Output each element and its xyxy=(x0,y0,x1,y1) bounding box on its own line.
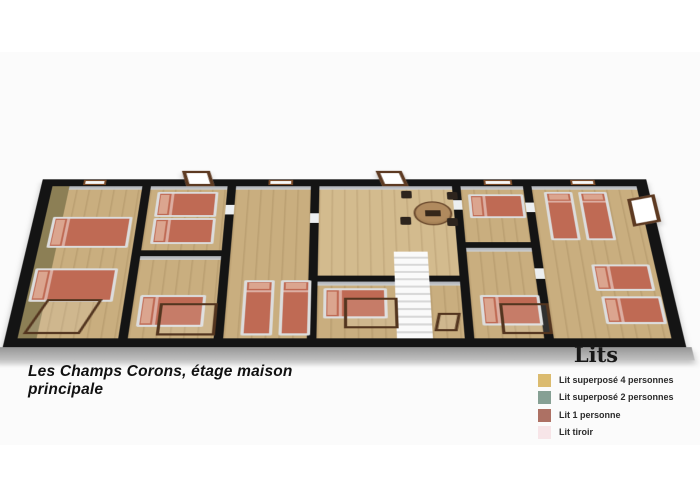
bed xyxy=(468,194,527,218)
legend-swatch-single xyxy=(538,409,551,422)
window-icon xyxy=(268,180,293,185)
chair xyxy=(400,217,411,225)
window-icon xyxy=(483,180,512,185)
door-jamb xyxy=(310,213,319,223)
legend-swatch-drawer xyxy=(538,426,551,439)
legend-label: Lit tiroir xyxy=(559,426,593,439)
bed xyxy=(278,280,311,335)
staircase xyxy=(394,252,433,339)
window-icon xyxy=(570,180,596,185)
window-icon xyxy=(83,180,107,185)
bunk-frame-icon xyxy=(499,303,553,334)
legend-swatch-bunk-2 xyxy=(538,391,551,404)
bed xyxy=(601,296,667,324)
chair xyxy=(447,218,458,226)
legend-label: Lit superposé 2 personnes xyxy=(559,391,674,404)
legend-title: Lits xyxy=(541,342,651,367)
bunk-frame-icon xyxy=(156,303,218,335)
legend-item-drawer: Lit tiroir xyxy=(538,426,593,439)
door-jamb xyxy=(534,268,545,279)
bed xyxy=(240,280,275,335)
floorplan-building xyxy=(3,179,687,347)
legend-label: Lit 1 personne xyxy=(559,409,621,422)
bed xyxy=(591,264,655,290)
bunk-frame-icon xyxy=(344,298,399,329)
legend-item-bunk-2: Lit superposé 2 personnes xyxy=(538,391,674,404)
bed xyxy=(154,192,218,217)
legend-label: Lit superposé 4 personnes xyxy=(559,374,674,387)
bunk-frame-icon xyxy=(434,313,461,331)
door-jamb xyxy=(453,200,462,209)
bed xyxy=(46,217,132,248)
bed xyxy=(28,268,118,301)
open-window-icon xyxy=(182,171,215,186)
room-floor xyxy=(318,186,460,275)
door-jamb xyxy=(525,203,535,213)
legend-item-bunk-4: Lit superposé 4 personnes xyxy=(538,374,674,387)
bed xyxy=(150,218,216,244)
chair xyxy=(401,191,412,199)
floorplan-scene xyxy=(3,179,687,347)
floorplan-caption: Les Champs Corons, étage maison principa… xyxy=(28,363,358,399)
legend-swatch-bunk-4 xyxy=(538,374,551,387)
door-jamb xyxy=(225,205,235,215)
legend-item-single: Lit 1 personne xyxy=(538,409,621,422)
chair xyxy=(447,192,458,200)
